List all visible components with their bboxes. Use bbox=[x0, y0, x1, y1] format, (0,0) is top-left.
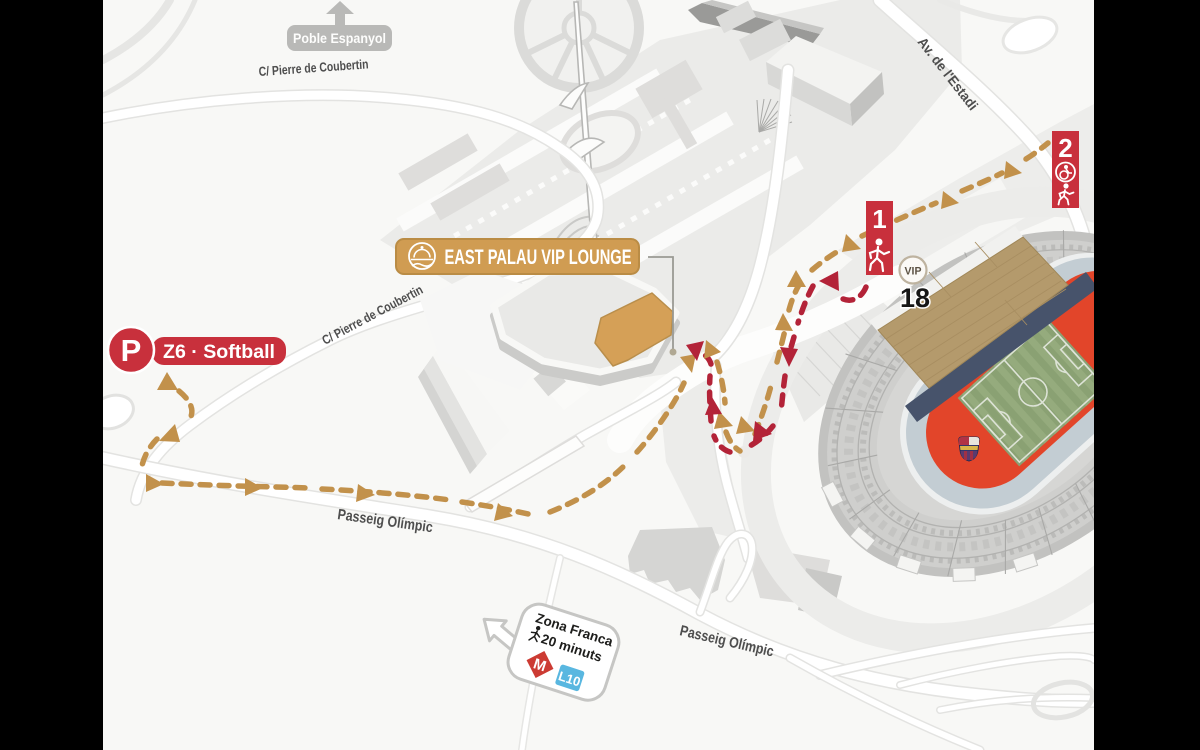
svg-text:1: 1 bbox=[872, 204, 886, 234]
svg-text:P: P bbox=[121, 333, 142, 368]
svg-text:18: 18 bbox=[900, 283, 930, 313]
svg-text:Z6 · Softball: Z6 · Softball bbox=[163, 342, 275, 363]
svg-text:VIP: VIP bbox=[905, 266, 922, 278]
svg-text:EAST PALAU VIP LOUNGE: EAST PALAU VIP LOUNGE bbox=[445, 246, 632, 269]
svg-text:2: 2 bbox=[1058, 133, 1072, 163]
svg-text:Poble Espanyol: Poble Espanyol bbox=[293, 30, 386, 46]
